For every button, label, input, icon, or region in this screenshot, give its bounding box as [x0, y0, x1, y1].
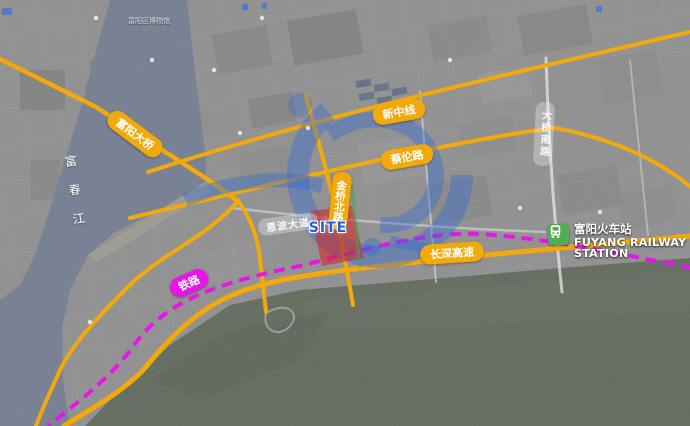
road-label-daqiao-south: 大桥南路	[533, 102, 555, 167]
map-canvas[interactable]: 富阳大桥 新中线 蔡伦路 金桥北路 大桥南路 恩波大道 长深高速 铁路 富春江 …	[0, 0, 690, 426]
site-label: SITE	[309, 220, 347, 236]
museum-poi-label: 富阳区博物馆	[128, 16, 170, 26]
station-callout: 富阳火车站 FUYANG RAILWAY STATION	[548, 224, 686, 259]
station-name-en-1: FUYANG RAILWAY	[574, 237, 686, 248]
station-name-en-2: STATION	[574, 248, 686, 259]
station-name-cn: 富阳火车站	[574, 224, 686, 236]
train-station-icon	[548, 224, 569, 245]
